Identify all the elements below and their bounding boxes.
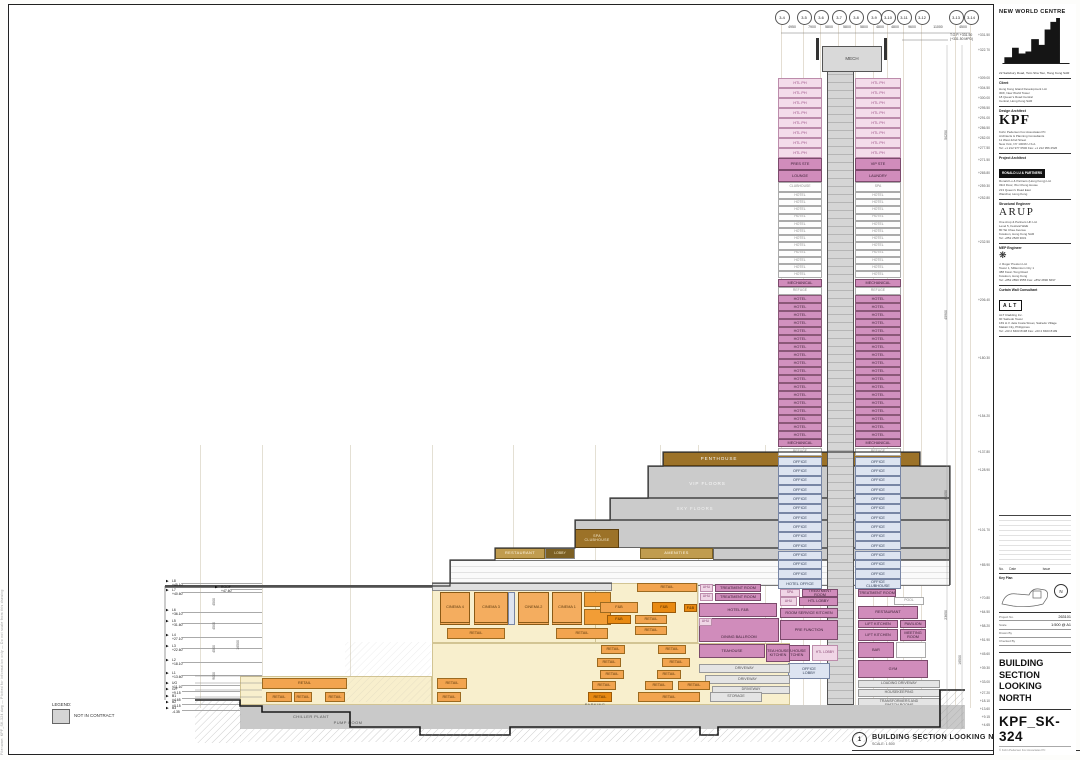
zone-htl-ph: HTL PH [778, 138, 822, 148]
zone-office-clubhouse: OFFICE CLUBHOUSE [855, 579, 901, 589]
zone-office: OFFICE [778, 513, 822, 522]
zone-ahu: AHU [700, 593, 713, 601]
zone-lobby: LOBBY [545, 548, 575, 559]
zone-office: OFFICE [778, 466, 822, 475]
zone-box [816, 38, 819, 60]
leader-line [182, 648, 262, 649]
field-label: Checked By [999, 639, 1015, 643]
address-line: Wanchai, Hong Kong [999, 192, 1071, 196]
zone-housekeeping: HOUSEKEEPING [858, 689, 940, 697]
zone-restaurant: RESTAURANT [858, 606, 918, 619]
dimension-text: 4800 [891, 25, 899, 29]
zone-hotel: HOTEL [778, 199, 822, 206]
zone-spa: SPA [780, 589, 800, 597]
zone-office: OFFICE [778, 551, 822, 560]
zone-hotel: HOTEL [855, 343, 901, 351]
dimension-rotated: 61050 [944, 490, 948, 500]
zone-hotel: HOTEL [855, 206, 901, 213]
zone-hotel: HOTEL [855, 351, 901, 359]
zone-retail: RETAIL [447, 628, 505, 639]
zone-office: OFFICE [855, 560, 901, 569]
zone-hotel: HOTEL [855, 327, 901, 335]
zone-retail: RETAIL [325, 692, 345, 702]
zone-office: OFFICE [855, 569, 901, 578]
field-row: Drawn By [999, 630, 1071, 638]
elevation-tick: +9.15 [960, 715, 990, 719]
legend-item-label: NOT IN CONTRACT [74, 713, 114, 718]
elevation-tick: +51.90 [960, 638, 990, 642]
zone-ahu: AHU [700, 584, 713, 592]
field-value: 1:500 @ A1 [1051, 623, 1071, 627]
field-value: 263101 [1058, 615, 1071, 619]
zone-laundry: LAUNDRY [855, 170, 901, 182]
zone-mechanical: MECHANICAL [778, 439, 822, 447]
zone-refuge: REFUGE [855, 287, 901, 295]
zone-hotel: HOTEL [855, 311, 901, 319]
zone-gym: GYM [858, 660, 928, 678]
zone-hotel: HOTEL [855, 431, 901, 439]
jrp-logo: ❋ [999, 251, 1071, 260]
section-heading: Structural Engineer [999, 202, 1071, 206]
address-line: Tel: +1 212 977 6500 Fax: +1 212 956 252… [999, 146, 1071, 150]
dimension-rotated: 16500 [958, 655, 962, 665]
sheet-number: KPF_SK-324 [999, 709, 1071, 744]
zone-hotel: HOTEL [855, 399, 901, 407]
zone-hotel: HOTEL [855, 359, 901, 367]
elevation-tick: +309.00 [960, 76, 990, 80]
zone-box [432, 583, 612, 591]
zone-restaurant: RESTAURANT [495, 548, 545, 559]
zone-hotel: HOTEL [855, 235, 901, 242]
zone-hotel: HOTEL [855, 199, 901, 206]
consultant-section: Structural EngineerARUPOve Arup & Partne… [999, 200, 1071, 244]
zone-office: OFFICE [778, 494, 822, 503]
elevation-tick: +154.20 [960, 414, 990, 418]
zone-treatment-room: TREATMENT ROOM [715, 593, 761, 601]
zone-office: OFFICE [778, 560, 822, 569]
zone-htl-ph: HTL PH [855, 98, 901, 108]
grid-bubble: 3-8 [849, 10, 864, 25]
section-heading: Curtain Wall Consultant [999, 288, 1071, 292]
grid-bubble: 3-10 [881, 10, 896, 25]
zone-lounge: LOUNGE [778, 170, 822, 182]
dimension-rotated: 9000 [212, 672, 216, 680]
level-flag: L4 +27.10 [166, 634, 182, 642]
zone-hotel: HOTEL [855, 367, 901, 375]
zone-retail: RETAIL [645, 681, 673, 690]
grid-bubble: 3-4 [775, 10, 790, 25]
level-flag: L3 +22.60 [166, 645, 182, 653]
elevation-tick: +13.60 [960, 707, 990, 711]
dimension-text: 5800 [860, 25, 868, 29]
north-arrow-icon: N [1054, 584, 1068, 598]
address-line: Tel: +63 2 8403 8198 Fax: +63 2 8403 819… [999, 329, 1071, 333]
zone-cinema-2: CINEMA 2 [518, 592, 549, 625]
elevation-tick: +101.70 [960, 528, 990, 532]
field-label: Project No. [999, 615, 1014, 619]
leader-line [231, 589, 262, 590]
zone-hotel: HOTEL [778, 367, 822, 375]
zone-hotel: HOTEL [778, 375, 822, 383]
zone-htl-lobby: HTL LOBBY [799, 597, 838, 606]
zone-treatment-room: TREATMENT ROOM [715, 584, 761, 592]
zone-treatment-room: TREATMENT ROOM [858, 589, 896, 597]
zone-f&b: F&B [600, 602, 638, 613]
zone-hotel: HOTEL [855, 319, 901, 327]
zone-htl-ph: HTL PH [855, 88, 901, 98]
elevation-tick: +322.70 [960, 48, 990, 52]
zone-hotel: HOTEL [778, 407, 822, 415]
elevation-tick: +128.90 [960, 468, 990, 472]
elevation-tick: +259.30 [960, 184, 990, 188]
zone-refuge: REFUGE [778, 287, 822, 295]
zone-hotel: HOTEL [778, 242, 822, 249]
zone-office: OFFICE [778, 485, 822, 494]
zone-cinema-3: CINEMA 3 [474, 592, 508, 625]
zone-retail: RETAIL [638, 692, 700, 702]
consultant-section: ClientHong Kong Island Development Ltd.3… [999, 79, 1071, 107]
zone-retail: RETAIL [601, 645, 625, 654]
zone-htl-ph: HTL PH [778, 128, 822, 138]
zone-office: OFFICE [855, 551, 901, 560]
zone-htl-ph: HTL PH [855, 128, 901, 138]
zone-pavilion: PAVILION [900, 620, 926, 628]
section-heading: Project Architect [999, 156, 1071, 160]
zone-retail: RETAIL [657, 670, 681, 679]
zone-hotel: HOTEL [778, 423, 822, 431]
field-label: Drawn By [999, 631, 1012, 635]
dimension-rotated: 16500 [236, 640, 240, 650]
zone-hotel: HOTEL [855, 295, 901, 303]
grid-bubble: 3-7 [832, 10, 847, 25]
dimension-text: 4950 [788, 25, 796, 29]
zone-hotel-f&b: HOTEL F&B [699, 603, 777, 617]
address-line: Central, Hong Kong SAR [999, 99, 1071, 103]
zone-retail: RETAIL [262, 678, 347, 689]
elevation-tick: +304.50 [960, 86, 990, 90]
dimension-rotated: 4500 [212, 645, 216, 653]
zone-box [896, 642, 926, 658]
detail-number-bubble: 1 [852, 732, 867, 747]
grid-line [200, 445, 201, 708]
field-row: Scale1:500 @ A1 [999, 621, 1071, 629]
elevation-tick: +265.80 [960, 171, 990, 175]
grid-bubble: 3-11 [897, 10, 912, 25]
zone-hotel: HOTEL [778, 327, 822, 335]
elevation-tick: +206.40 [960, 298, 990, 302]
level-flag: L2 +18.10 [166, 659, 182, 667]
zone-retail: RETAIL [588, 692, 612, 702]
zone-hotel: HOTEL [778, 235, 822, 242]
zone-hotel: HOTEL [778, 250, 822, 257]
zone-hotel: HOTEL [778, 319, 822, 327]
zone-cinema-1: CINEMA 1 [552, 592, 582, 625]
dimension-text: 4500 [959, 25, 967, 29]
elevation-tick: +252.80 [960, 196, 990, 200]
leader-line [182, 637, 262, 638]
zone-hotel: HOTEL [855, 391, 901, 399]
zone-office: OFFICE [855, 522, 901, 531]
level-flag: L7 +40.60 [166, 589, 182, 597]
elevation-tick: +282.00 [960, 136, 990, 140]
elevation-tick: +286.50 [960, 126, 990, 130]
zone-retail: RETAIL [556, 628, 608, 639]
zone-retail: RETAIL [635, 615, 667, 624]
zone-htl-ph: HTL PH [855, 118, 901, 128]
zone-hotel: HOTEL [855, 221, 901, 228]
zone-htl-ph: HTL PH [855, 108, 901, 118]
grid-bubble: 3-5 [797, 10, 812, 25]
zone-hotel: HOTEL [855, 383, 901, 391]
leader-line [182, 623, 262, 624]
elevation-tick: +180.30 [960, 356, 990, 360]
elevation-tick: +27.20 [960, 691, 990, 695]
zone-hotel: HOTEL [855, 335, 901, 343]
elevation-tick: +70.80 [960, 596, 990, 600]
zone-htl-lobby: HTL LOBBY [812, 645, 838, 661]
zone-clubhouse: CLUBHOUSE [778, 182, 822, 192]
level-flag: L5 +31.60 [166, 620, 182, 628]
drawing-sheet: PENTHOUSEVIP FLOORSSKY FLOORSRESTAURANTL… [0, 0, 1080, 760]
zone-hotel: HOTEL [778, 351, 822, 359]
consultant-section: Project ArchitectRONALD LU & PARTNERSRon… [999, 154, 1071, 200]
zone-hotel: HOTEL [855, 271, 901, 278]
zone-retail: RETAIL [600, 670, 624, 679]
level-flag: B3 -4.35 [166, 707, 180, 715]
zone-loading-driveway: LOADING DRIVEWAY [858, 680, 940, 688]
elevation-tick: +45.60 [960, 652, 990, 656]
elevation-tick: +295.50 [960, 106, 990, 110]
zone-office: OFFICE [855, 541, 901, 550]
consultant-sections: ClientHong Kong Island Development Ltd.3… [999, 79, 1071, 337]
legend: LEGEND: NOT IN CONTRACT [52, 702, 114, 724]
zone-mechanical: MECHANICAL [778, 279, 822, 287]
elevation-tick: +18.10 [960, 699, 990, 703]
grid-line [921, 24, 922, 708]
level-flag: L6 +36.10 [166, 609, 182, 617]
zone-office: OFFICE [855, 457, 901, 466]
zone-hotel: HOTEL [778, 303, 822, 311]
zone-office: OFFICE [855, 485, 901, 494]
zone-htl-ph: HTL PH [855, 78, 901, 88]
zone-hotel: HOTEL [778, 264, 822, 271]
zone-spa-clubhouse: SPA CLUBHOUSE [575, 529, 619, 548]
zone-retail: RETAIL [597, 658, 621, 667]
grid-bubble: 3-12 [915, 10, 930, 25]
zone-hotel: HOTEL [855, 303, 901, 311]
arup-logo: ARUP [999, 207, 1071, 218]
consultant-section: Curtain Wall ConsultantALTALT Cladding I… [999, 286, 1071, 337]
dimension-text: 9600 [908, 25, 916, 29]
zone-hotel: HOTEL [778, 295, 822, 303]
copyright-note: © Kohn Pedersen Fox Associates PC [999, 746, 1071, 752]
kpf-logo: KPF [999, 114, 1071, 128]
zone-bar: BAR [858, 642, 894, 658]
building-silhouette-icon [999, 18, 1071, 69]
zone-hotel: HOTEL [778, 214, 822, 221]
zone-office: OFFICE [778, 569, 822, 578]
leader-line [182, 662, 262, 663]
consultant-section: Design ArchitectKPFKohn Pedersen Fox Ass… [999, 107, 1071, 154]
zone-penthouse: PENTHOUSE [665, 452, 773, 466]
zone-cinema-4: CINEMA 4 [440, 592, 470, 625]
zone-htl-ph: HTL PH [778, 108, 822, 118]
elevation-tick: +85.90 [960, 563, 990, 567]
zone-office: OFFICE [778, 457, 822, 466]
zone-hotel: HOTEL [778, 391, 822, 399]
zone-hotel: HOTEL [855, 257, 901, 264]
building-section-drawing: PENTHOUSEVIP FLOORSSKY FLOORSRESTAURANTL… [0, 0, 1080, 760]
title-block: NEW WORLD CENTRE 22 Salisbury Road, Tsim… [993, 4, 1076, 755]
zone-box [884, 38, 887, 60]
elevation-tick: +58.20 [960, 624, 990, 628]
zone-hotel: HOTEL [778, 221, 822, 228]
dimension-text: 11000 [933, 25, 942, 29]
zone-hotel: HOTEL [778, 335, 822, 343]
zone-office: OFFICE [778, 504, 822, 513]
section-heading: Design Architect [999, 109, 1071, 113]
zone-hotel: HOTEL [778, 192, 822, 199]
zone-ahu: AHU [699, 618, 712, 626]
zone-retail: RETAIL [635, 626, 667, 635]
consultant-section: MEP Engineer❋J. Roger Preston Ltd.Tower … [999, 244, 1071, 286]
dimension-rotated: 50250 [944, 130, 948, 140]
zone-hotel: HOTEL [778, 206, 822, 213]
zone-hotel: HOTEL [778, 311, 822, 319]
alt-logo: ALT [999, 300, 1022, 311]
zone-amenities: AMENITIES [640, 548, 713, 559]
zone-office-lobby: OFFICE LOBBY [788, 663, 830, 679]
zone-htl-ph: HTL PH [778, 148, 822, 158]
key-plan-sketch [999, 580, 1051, 610]
zone-f&b: F&B [684, 604, 697, 612]
zone-hotel: HOTEL [855, 264, 901, 271]
plot-stamp: Filename: KPF_SK-324.dwg — Plotted for i… [0, 420, 4, 755]
dimension-text: 5800 [843, 25, 851, 29]
zone-office: OFFICE [778, 541, 822, 550]
zone-office: OFFICE [855, 476, 901, 485]
zone-pre-function: PRE FUNCTION [780, 620, 838, 640]
grid-line [350, 445, 351, 708]
zone-hotel: HOTEL [778, 257, 822, 264]
zone-hotel: HOTEL [778, 343, 822, 351]
zone-meeting-room: MEETING ROOM [900, 629, 926, 641]
zone-box [165, 585, 450, 588]
elevation-tick: +271.50 [960, 158, 990, 162]
zone-box [508, 592, 515, 625]
zone-hotel: HOTEL [778, 383, 822, 391]
zone-office: OFFICE [855, 494, 901, 503]
zone-tea-house-kitchen: TEA HOUSE KITCHEN [766, 644, 790, 662]
zone-hotel: HOTEL [855, 242, 901, 249]
not-in-contract-swatch [52, 709, 70, 724]
elevation-tick: +4.65 [960, 723, 990, 727]
zone-vip-ste: VIP STE [855, 158, 901, 170]
title-block-fields: Project No.263101Scale1:500 @ A1Drawn By… [999, 613, 1071, 646]
zone-refuge: REFUGE [855, 448, 901, 456]
zone-office: OFFICE [855, 466, 901, 475]
grid-line [262, 445, 263, 708]
zone-lift-kitchen: LIFT KITCHEN [858, 620, 898, 628]
elevation-tick: +137.80 [960, 450, 990, 454]
zone-storage: STORAGE [710, 692, 762, 702]
elevation-tick: +291.00 [960, 116, 990, 120]
zone-hotel: HOTEL [778, 228, 822, 235]
section-heading: MEP Engineer [999, 246, 1071, 250]
dimension-rotated: 23650 [944, 610, 948, 620]
rlp-logo: RONALD LU & PARTNERS [999, 169, 1045, 177]
elevation-tick: +277.50 [960, 146, 990, 150]
zone-hotel: HOTEL [855, 192, 901, 199]
grid-line [955, 24, 956, 708]
grid-bubble: 3-6 [814, 10, 829, 25]
zone-retail: RETAIL [437, 678, 467, 689]
zone-lift-kitchen: LIFT KITCHEN [858, 629, 898, 641]
zone-spa: SPA [855, 182, 901, 192]
zone-htl-ph: HTL PH [855, 138, 901, 148]
elevation-tick: +64.50 [960, 610, 990, 614]
zone-office: OFFICE [778, 522, 822, 531]
zone-refuge: REFUGE [778, 448, 822, 456]
leader-line [182, 612, 262, 613]
address-line: Tel: +852 2890 3555 Fax: +852 2890 6697 [999, 278, 1071, 282]
zone-hotel: HOTEL [778, 415, 822, 423]
zone-hotel: HOTEL [778, 431, 822, 439]
zone-hotel: HOTEL [855, 375, 901, 383]
zone-hotel: HOTEL [855, 423, 901, 431]
zone-sky-floors: SKY FLOORS [640, 504, 750, 514]
grid-bubble: 3-9 [867, 10, 882, 25]
zone-pump-room: PUMP ROOM [324, 719, 372, 727]
elevation-tick: +33.00 [960, 680, 990, 684]
zone-office: OFFICE [855, 513, 901, 522]
zone-retail: RETAIL [437, 692, 461, 702]
zone-mechanical: MECHANICAL [855, 279, 901, 287]
zone-pool: POOL [894, 597, 924, 605]
zone-htl-ph: HTL PH [855, 148, 901, 158]
dimension-rotated: 45900 [944, 310, 948, 320]
zone-retail: RETAIL [592, 681, 616, 690]
field-label: Scale [999, 623, 1007, 627]
zone-office: OFFICE [778, 476, 822, 485]
zone-driveway: DRIVEWAY [699, 664, 790, 673]
section-heading: Client [999, 81, 1071, 85]
field-row: Project No.263101 [999, 613, 1071, 621]
zone-driveway: DRIVEWAY [705, 675, 790, 684]
dimension-text: 5800 [825, 25, 833, 29]
zone-htl-ph: HTL PH [778, 98, 822, 108]
zone-retail: RETAIL [658, 645, 686, 654]
zone-mech: MECH [822, 46, 882, 72]
zone-hotel: HOTEL [855, 407, 901, 415]
grid-bubble: 3-13 [949, 10, 964, 25]
zone-office: OFFICE [855, 532, 901, 541]
elevation-tick: +232.50 [960, 240, 990, 244]
zone-htl-ph: HTL PH [778, 88, 822, 98]
zone-retail: RETAIL [294, 692, 312, 702]
revision-table-header: No. Date Issue [999, 566, 1071, 574]
zone-retail: RETAIL [637, 583, 697, 592]
zone-f&b: F&B [607, 615, 631, 624]
zone-hotel: HOTEL [778, 399, 822, 407]
zone-retail: RETAIL [662, 658, 690, 667]
dimension-rotated: 4500 [212, 598, 216, 606]
zone-treatment-room: TREATMENT ROOM [802, 589, 838, 597]
leader-line [182, 583, 262, 584]
zone-office: OFFICE [855, 504, 901, 513]
zone-ahu: AHU [780, 597, 797, 606]
drawing-title: BUILDING SECTION LOOKING NORTH [999, 652, 1071, 704]
